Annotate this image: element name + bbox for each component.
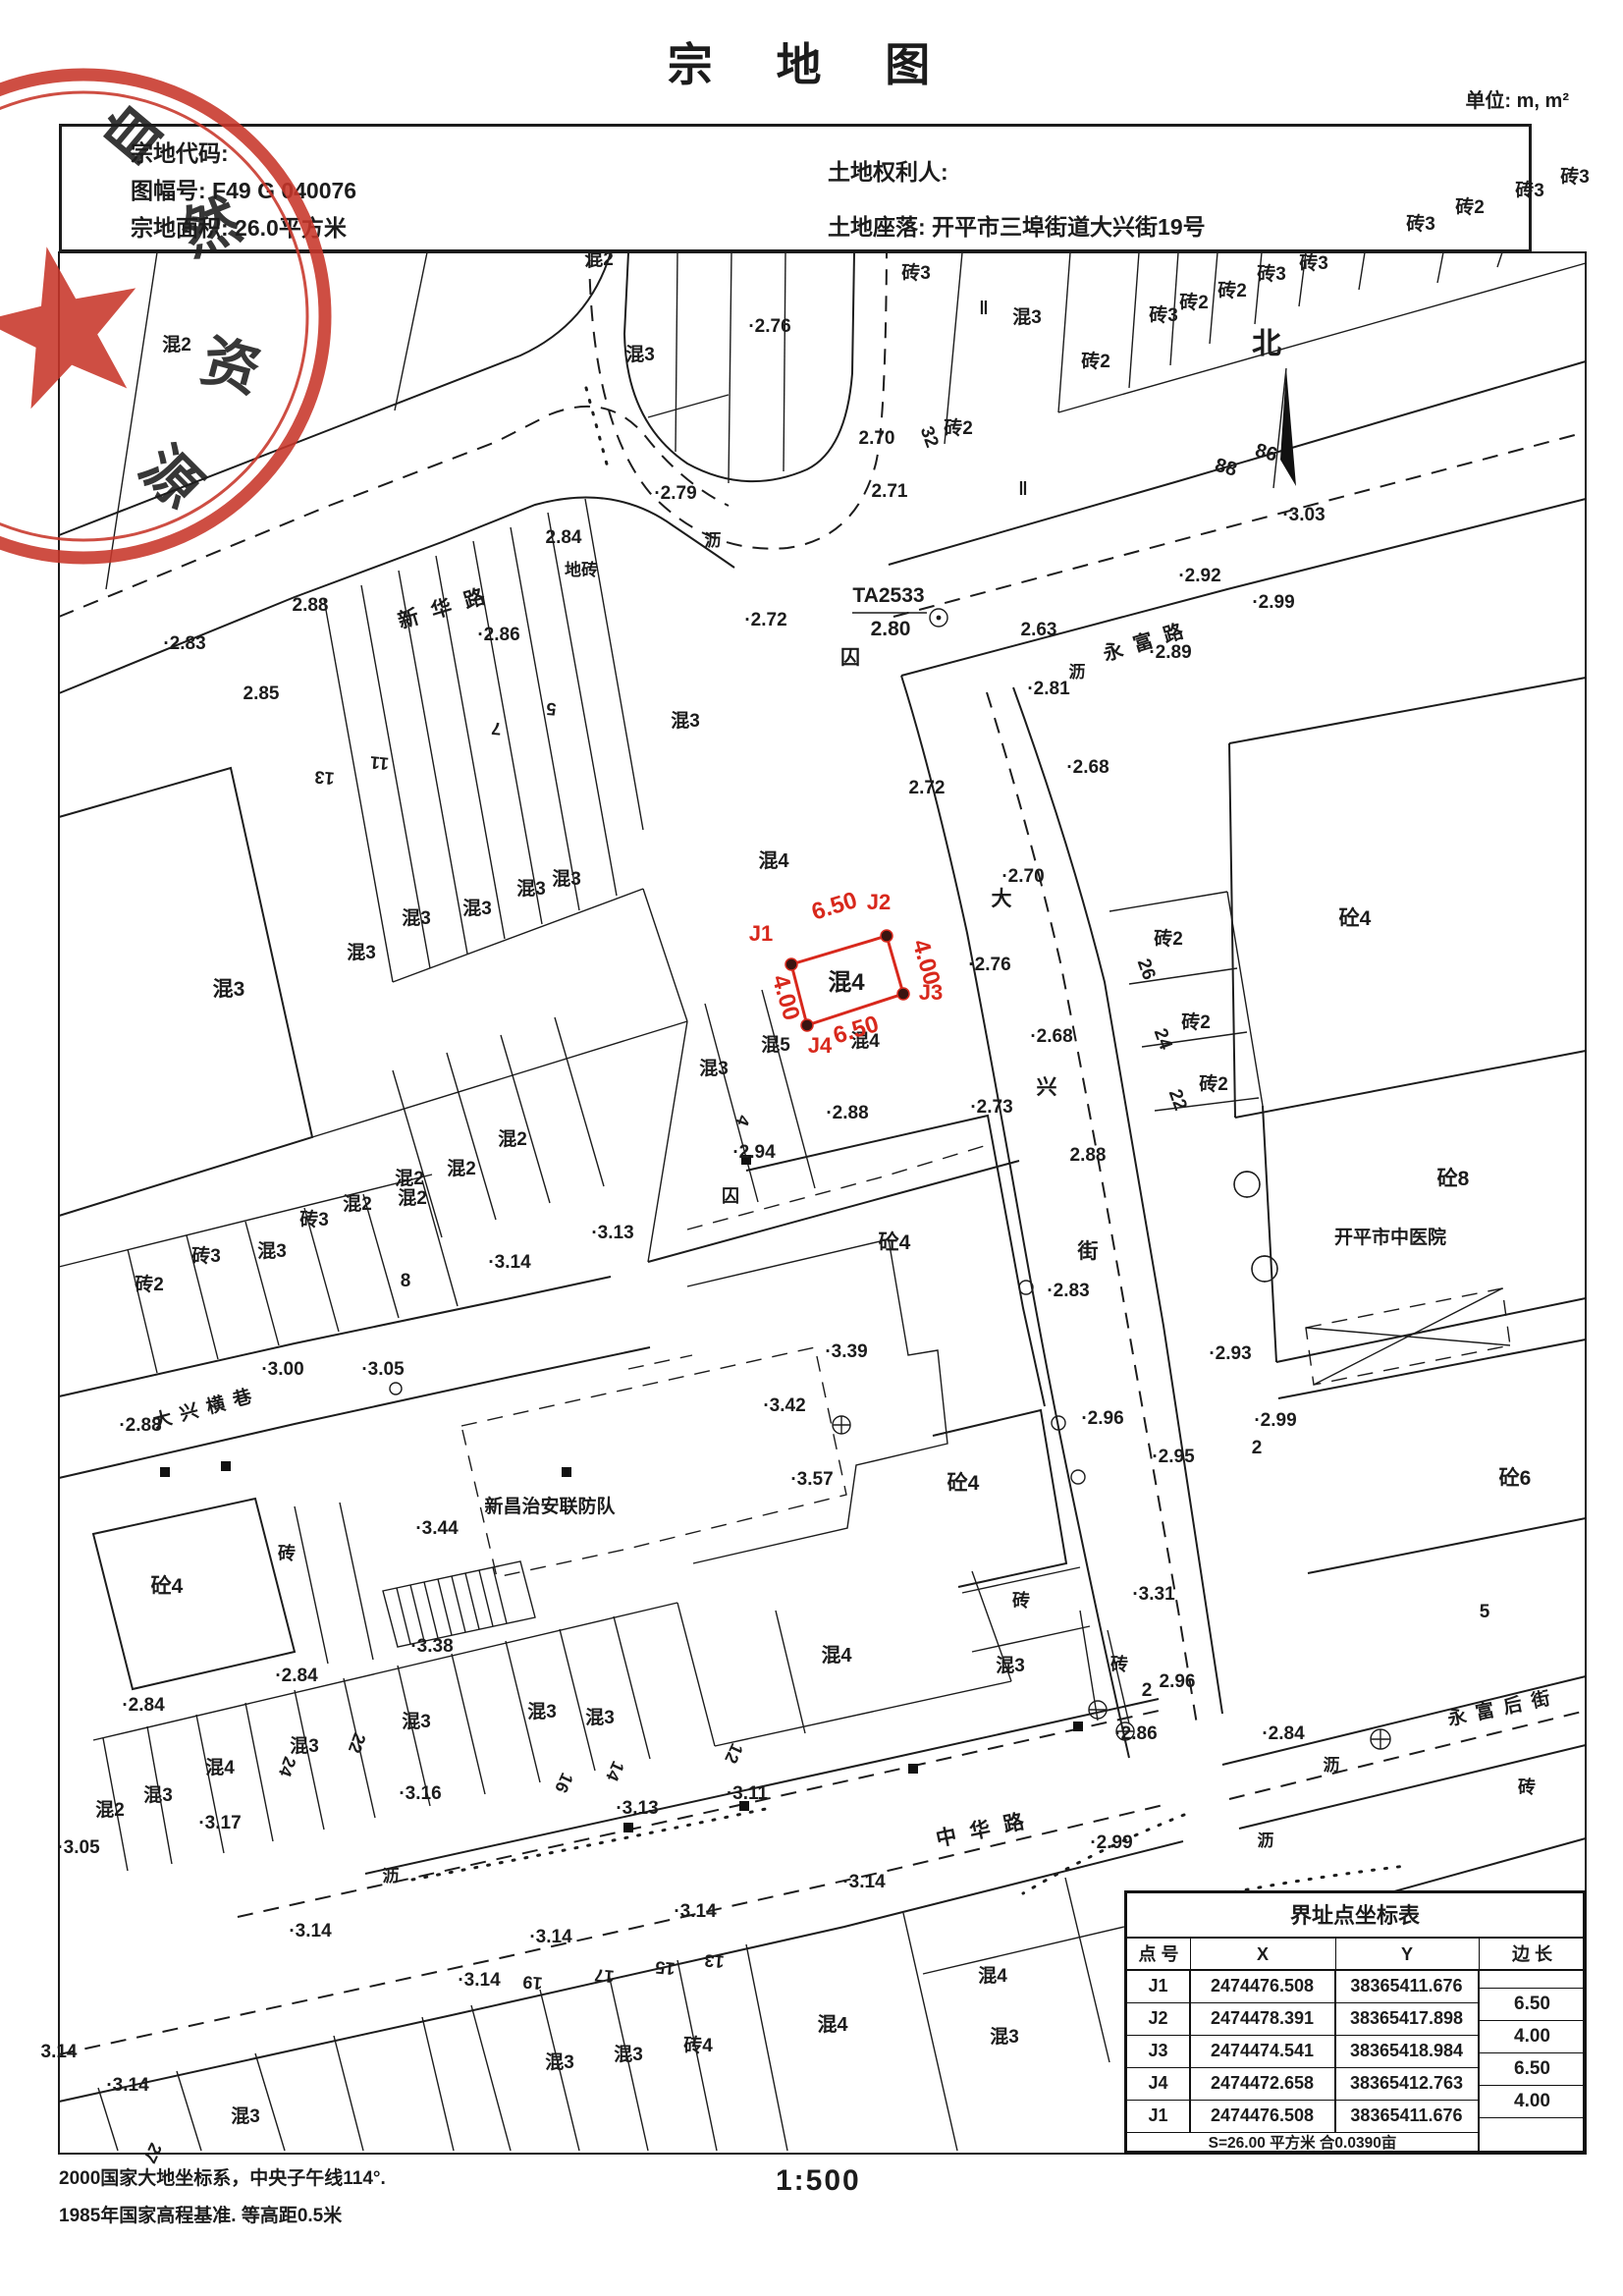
table-cell: 2474478.391 bbox=[1190, 2003, 1335, 2036]
map-scale: 1:500 bbox=[776, 2164, 861, 2198]
map-label: 砖3 bbox=[1515, 179, 1544, 201]
table-rows: J12474476.50838365411.676J22474478.39138… bbox=[1127, 1971, 1479, 2133]
map-label: ·3.13 bbox=[591, 1223, 633, 1243]
map-label: 混3 bbox=[699, 1058, 729, 1079]
map-label: ·2.84 bbox=[1262, 1723, 1305, 1744]
map-label: 8 bbox=[401, 1271, 411, 1291]
map-label: ·2.86 bbox=[477, 625, 519, 645]
seal-char: 然 bbox=[173, 188, 249, 268]
map-label: 混3 bbox=[671, 710, 700, 732]
map-label: 囚 bbox=[840, 647, 860, 669]
map-label: ·3.14 bbox=[842, 1872, 886, 1892]
table-divider bbox=[1190, 1939, 1191, 2133]
side-length-divider bbox=[1479, 2020, 1586, 2021]
map-label: 砼6 bbox=[1499, 1466, 1532, 1490]
map-label: 16 bbox=[551, 1770, 577, 1796]
map-label: 3.14 bbox=[41, 2042, 78, 2062]
map-label: ·2.70 bbox=[1001, 866, 1044, 887]
col-x: X bbox=[1190, 1939, 1335, 1971]
map-label: 砖3 bbox=[901, 261, 931, 284]
map-label: 沥 bbox=[1258, 1831, 1274, 1850]
corner-mark-icon bbox=[221, 1461, 231, 1471]
map-label: 砼4 bbox=[1339, 906, 1372, 930]
corner-mark-icon bbox=[1073, 1722, 1083, 1731]
map-label: 2.71 bbox=[872, 481, 908, 502]
map-label: ·3.14 bbox=[674, 1901, 717, 1922]
map-label: 地砖 bbox=[565, 560, 598, 579]
map-label: 混3 bbox=[625, 344, 655, 365]
map-label: ·3.39 bbox=[825, 1341, 867, 1362]
table-cell: 2474476.508 bbox=[1190, 2101, 1335, 2133]
map-label: 32 bbox=[916, 424, 943, 451]
map-label: 砖3 bbox=[1299, 251, 1328, 274]
table-cell: 38365418.984 bbox=[1335, 2036, 1479, 2068]
map-label: 新昌治安联防队 bbox=[484, 1495, 616, 1517]
map-label: 13 bbox=[314, 767, 336, 789]
table-row: J12474476.50838365411.676 bbox=[1127, 1971, 1479, 2003]
map-label: 砖2 bbox=[1217, 279, 1247, 301]
seal-char: 自 bbox=[90, 92, 176, 177]
map-label: 沥 bbox=[1324, 1756, 1340, 1775]
map-label: 混3 bbox=[231, 2105, 260, 2127]
map-label: 砖 bbox=[1110, 1654, 1128, 1674]
map-label: ·2.93 bbox=[1209, 1343, 1251, 1364]
map-label: 大 bbox=[992, 888, 1012, 910]
seal-char: 资 bbox=[195, 328, 267, 405]
map-label: 开平市中医院 bbox=[1334, 1226, 1446, 1248]
map-frame bbox=[59, 252, 1586, 2154]
map-label: ·3.14 bbox=[458, 1970, 501, 1991]
map-label: 砖2 bbox=[1179, 291, 1209, 313]
map-label: 混2 bbox=[398, 1187, 427, 1209]
map-label: ·2.96 bbox=[1081, 1408, 1123, 1429]
map-label: 混2 bbox=[162, 334, 191, 355]
map-label: 砖2 bbox=[1154, 927, 1183, 950]
map-label: 混5 bbox=[761, 1034, 790, 1056]
map-label: ·3.42 bbox=[763, 1395, 805, 1416]
manhole-circle-icon bbox=[390, 1383, 402, 1394]
table-divider bbox=[1335, 1939, 1336, 2133]
map-label: 15 bbox=[655, 1957, 676, 1979]
map-label: ·2.72 bbox=[744, 610, 786, 630]
map-label: ‖ bbox=[979, 299, 988, 319]
manhole-circle-icon bbox=[1252, 1256, 1277, 1282]
map-label: 砖3 bbox=[1560, 165, 1590, 188]
elevation-note: 1985年国家高程基准. 等高距0.5米 bbox=[59, 2198, 386, 2235]
map-label: ·3.38 bbox=[410, 1636, 453, 1657]
map-label: ·2.68 bbox=[1030, 1026, 1072, 1047]
map-label: 2.88 bbox=[293, 595, 329, 616]
map-label: 砖2 bbox=[1455, 195, 1485, 218]
table-row: J32474474.54138365418.984 bbox=[1127, 2036, 1479, 2068]
map-label: 2.63 bbox=[1021, 620, 1057, 640]
side-length-value: 6.50 bbox=[1479, 2052, 1586, 2085]
table-cell: J4 bbox=[1127, 2068, 1190, 2101]
table-cell: 38365411.676 bbox=[1335, 1971, 1479, 2003]
parcel-dim-label: J1 bbox=[749, 921, 773, 946]
map-label: ·2.83 bbox=[163, 633, 205, 654]
benchmark-elevation: 2.80 bbox=[871, 618, 911, 640]
map-label: ·2.89 bbox=[1149, 642, 1191, 663]
map-label: 24 bbox=[275, 1754, 300, 1779]
map-label: 混3 bbox=[1012, 306, 1042, 328]
map-label: 22 bbox=[345, 1730, 370, 1756]
map-label: ·2.94 bbox=[732, 1142, 776, 1163]
map-label: ·2.95 bbox=[1152, 1447, 1195, 1467]
boundary-point-table: 界址点坐标表 点 号 X Y 边 长 J12474476.50838365411… bbox=[1124, 1890, 1586, 2154]
table-row: J42474472.65838365412.763 bbox=[1127, 2068, 1479, 2101]
map-label: 砼4 bbox=[151, 1574, 184, 1598]
datum-note: 2000国家大地坐标系，中央子午线114°. bbox=[59, 2160, 386, 2198]
map-label: 88 bbox=[1213, 455, 1239, 481]
map-label: 砖3 bbox=[1406, 212, 1435, 235]
map-label: 4 bbox=[732, 1113, 754, 1128]
parcel-dim-label: 6.50 bbox=[809, 887, 861, 925]
table-cell: 2474476.508 bbox=[1190, 1971, 1335, 2003]
table-footer-area: S=26.00 平方米 合0.0390亩 bbox=[1127, 2133, 1479, 2154]
table-header-row: 点 号 X Y 边 长 bbox=[1127, 1939, 1583, 1971]
manhole-circle-icon bbox=[1019, 1281, 1033, 1294]
table-cell: J2 bbox=[1127, 2003, 1190, 2036]
map-label: ·3.14 bbox=[289, 1921, 332, 1941]
parcel-dim-label: 4.00 bbox=[767, 972, 805, 1023]
map-label: 街 bbox=[1077, 1239, 1099, 1263]
map-label: 砼4 bbox=[879, 1230, 911, 1254]
map-label: 砖3 bbox=[191, 1244, 221, 1267]
map-symbols bbox=[160, 1155, 1390, 1832]
map-label: ·2.99 bbox=[1090, 1832, 1132, 1853]
map-label: ·2.83 bbox=[1047, 1281, 1089, 1301]
manhole-circle-icon bbox=[1234, 1172, 1260, 1197]
table-title: 界址点坐标表 bbox=[1127, 1893, 1583, 1939]
map-label: 2 bbox=[1252, 1438, 1263, 1458]
table-row: J22474478.39138365417.898 bbox=[1127, 2003, 1479, 2036]
boundary-point-J4 bbox=[801, 1019, 813, 1031]
map-label: ·3.44 bbox=[415, 1518, 459, 1539]
map-label: 2.85 bbox=[243, 683, 280, 704]
side-length-divider bbox=[1479, 1988, 1586, 1989]
map-label: 混4 bbox=[817, 2013, 848, 2036]
map-label: 混3 bbox=[143, 1784, 173, 1806]
side-length-value: 4.00 bbox=[1479, 2020, 1586, 2052]
map-label: 混3 bbox=[545, 2051, 574, 2073]
table-row: J12474476.50838365411.676 bbox=[1127, 2101, 1479, 2133]
map-label: 砖 bbox=[278, 1543, 296, 1563]
map-label: 沥 bbox=[383, 1867, 400, 1886]
map-label: 17 bbox=[594, 1965, 616, 1987]
map-label: ·3.17 bbox=[198, 1813, 241, 1833]
table-cell: 2474474.541 bbox=[1190, 2036, 1335, 2068]
map-label: ·3.05 bbox=[57, 1837, 100, 1858]
map-label: ·2.79 bbox=[654, 483, 696, 504]
map-label: ·3.57 bbox=[790, 1469, 833, 1490]
map-label: 砖2 bbox=[944, 416, 973, 439]
map-label: 2.96 bbox=[1160, 1671, 1196, 1692]
map-label: 混3 bbox=[290, 1735, 319, 1757]
map-label: 砖2 bbox=[1181, 1011, 1211, 1033]
table-cell: 38365411.676 bbox=[1335, 2101, 1479, 2133]
north-arrow-icon bbox=[1273, 368, 1296, 488]
map-label: 混3 bbox=[614, 2044, 643, 2065]
map-label: 混3 bbox=[585, 1707, 615, 1728]
map-label: 中华路 bbox=[934, 1807, 1040, 1851]
map-label: 囚 bbox=[722, 1186, 739, 1206]
map-label: 砖 bbox=[1012, 1590, 1030, 1611]
map-label: 混2 bbox=[343, 1193, 372, 1215]
official-seal: 自然资源 bbox=[0, 75, 325, 558]
map-label: 混3 bbox=[516, 878, 546, 900]
map-label: ·2.73 bbox=[970, 1097, 1012, 1118]
map-label: 沥 bbox=[1069, 663, 1086, 682]
map-label: 2.84 bbox=[546, 527, 582, 548]
map-label: 混3 bbox=[402, 1711, 431, 1732]
map-label: 5 bbox=[1480, 1602, 1490, 1622]
parcel-type-label: 混4 bbox=[828, 969, 865, 996]
map-label: ·3.05 bbox=[361, 1359, 405, 1380]
col-y: Y bbox=[1335, 1939, 1479, 1971]
map-label: 混3 bbox=[462, 898, 492, 919]
map-label: 19 bbox=[522, 1972, 544, 1994]
table-cell: J1 bbox=[1127, 2101, 1190, 2133]
map-label: ·2.84 bbox=[122, 1695, 165, 1716]
table-cell: 38365417.898 bbox=[1335, 2003, 1479, 2036]
table-divider bbox=[1479, 1939, 1480, 2154]
map-label: 24 bbox=[1150, 1026, 1176, 1053]
map-label: 7 bbox=[491, 719, 503, 739]
map-label: 86 bbox=[1253, 440, 1279, 466]
map-label: 混2 bbox=[584, 248, 614, 270]
map-label: 混3 bbox=[527, 1701, 557, 1722]
corner-mark-icon bbox=[160, 1467, 170, 1477]
map-label: 兴 bbox=[1037, 1076, 1057, 1099]
map-label: 混4 bbox=[758, 849, 789, 872]
map-label: 混3 bbox=[996, 1655, 1025, 1676]
parcel-dim-label: J4 bbox=[808, 1033, 833, 1058]
map-label: ·2.99 bbox=[1252, 592, 1294, 613]
map-notes: 2000国家大地坐标系，中央子午线114°. 1985年国家高程基准. 等高距0… bbox=[59, 2160, 386, 2235]
map-label: ·3.16 bbox=[399, 1783, 441, 1804]
map-label: 2.72 bbox=[909, 778, 946, 798]
map-label: 混3 bbox=[402, 907, 431, 929]
side-length-divider bbox=[1479, 2085, 1586, 2086]
parcel-map-page: 宗 地 图 单位: m, m² 宗地代码: 图幅号: F49 G 040076 … bbox=[0, 0, 1623, 2296]
map-label: 11 bbox=[369, 752, 390, 774]
parcel-dim-label: 4.00 bbox=[907, 937, 946, 988]
table-cell: 38365412.763 bbox=[1335, 2068, 1479, 2101]
map-label: ·2.68 bbox=[1066, 757, 1109, 778]
map-label: ·3.14 bbox=[529, 1927, 572, 1947]
map-label: 混3 bbox=[213, 978, 245, 1001]
map-label: ·3.14 bbox=[106, 2075, 149, 2096]
subject-parcel: J1J2J3J46.504.006.504.00混4 bbox=[749, 887, 946, 1058]
map-label: ·2.88 bbox=[826, 1103, 868, 1123]
map-label: 2.70 bbox=[859, 428, 895, 449]
map-label: ·2.76 bbox=[748, 316, 790, 337]
boundary-point-J3 bbox=[897, 988, 909, 1000]
map-label: ·3.13 bbox=[616, 1798, 658, 1819]
map-label: 混3 bbox=[552, 868, 581, 890]
table-cell: J3 bbox=[1127, 2036, 1190, 2068]
map-label: ·2.99 bbox=[1254, 1410, 1296, 1431]
north-label: 北 bbox=[1252, 328, 1281, 360]
map-label: 14 bbox=[602, 1758, 628, 1784]
map-label: 混3 bbox=[347, 942, 376, 963]
map-label: 砖2 bbox=[135, 1273, 164, 1295]
map-label: 13 bbox=[704, 1950, 726, 1972]
map-label: ·2.76 bbox=[968, 955, 1010, 975]
map-label: ·2.92 bbox=[1178, 566, 1220, 586]
side-length-divider bbox=[1479, 2052, 1586, 2053]
map-label: 混4 bbox=[205, 1757, 235, 1778]
map-label: ·2.81 bbox=[1027, 679, 1070, 699]
corner-mark-icon bbox=[908, 1764, 918, 1774]
table-cell: J1 bbox=[1127, 1971, 1190, 2003]
map-label: ·3.03 bbox=[1282, 505, 1325, 525]
map-label: 砖3 bbox=[1149, 303, 1178, 326]
map-label: 沥 bbox=[705, 531, 722, 550]
map-label: 混4 bbox=[978, 1965, 1007, 1987]
side-length-value: 4.00 bbox=[1479, 2085, 1586, 2117]
corner-mark-icon bbox=[562, 1467, 571, 1477]
col-side: 边 长 bbox=[1479, 1939, 1586, 1971]
map-label: 砼8 bbox=[1437, 1167, 1470, 1190]
map-label: 5 bbox=[546, 699, 558, 720]
map-label: 混4 bbox=[821, 1644, 852, 1667]
map-label: 2 bbox=[1142, 1680, 1153, 1701]
col-point: 点 号 bbox=[1127, 1939, 1190, 1971]
map-label: 砼4 bbox=[947, 1471, 980, 1495]
map-label: 砖3 bbox=[299, 1208, 329, 1230]
map-label: 砖4 bbox=[683, 2034, 713, 2056]
map-label: ·3.00 bbox=[261, 1359, 303, 1380]
map-label: ·3.14 bbox=[488, 1252, 531, 1273]
map-label: 2.88 bbox=[1070, 1145, 1107, 1166]
side-length-value: 6.50 bbox=[1479, 1988, 1586, 2020]
map-label: 大兴横巷 bbox=[150, 1383, 262, 1433]
map-label: 混2 bbox=[498, 1128, 527, 1150]
map-label: ·2.88 bbox=[119, 1415, 161, 1436]
map-label: 混2 bbox=[95, 1799, 125, 1821]
map-label: 混2 bbox=[395, 1168, 424, 1189]
side-length-divider bbox=[1479, 2117, 1586, 2118]
road-linework bbox=[59, 252, 1586, 2102]
boundary-point-J1 bbox=[785, 958, 797, 970]
map-label: 永富后街 bbox=[1444, 1684, 1561, 1730]
map-label: ·2.84 bbox=[275, 1666, 318, 1686]
table-cell: 2474472.658 bbox=[1190, 2068, 1335, 2101]
map-label: ·3.11 bbox=[727, 1783, 769, 1804]
map-label: 26 bbox=[1133, 957, 1160, 983]
building-linework bbox=[59, 499, 1129, 2151]
map-label: 砖2 bbox=[1081, 350, 1110, 372]
corner-mark-icon bbox=[623, 1823, 633, 1832]
parcel-dim-label: J2 bbox=[867, 890, 891, 914]
map-label: 混3 bbox=[990, 2026, 1019, 2048]
manhole-circle-icon bbox=[1071, 1470, 1085, 1484]
seal-char: 源 bbox=[128, 435, 213, 520]
map-label: ·3.31 bbox=[1132, 1584, 1175, 1605]
map-label: ‖ bbox=[1018, 479, 1027, 500]
map-label: 砖3 bbox=[1257, 262, 1286, 285]
map-label: ·2.86 bbox=[1114, 1723, 1157, 1744]
map-label: 砖2 bbox=[1199, 1072, 1228, 1095]
map-label: 混3 bbox=[257, 1240, 287, 1262]
map-label: 混2 bbox=[447, 1158, 476, 1179]
benchmark-name: TA2533 bbox=[852, 584, 924, 607]
boundary-point-J2 bbox=[881, 930, 893, 942]
map-label: 砖 bbox=[1518, 1777, 1536, 1797]
